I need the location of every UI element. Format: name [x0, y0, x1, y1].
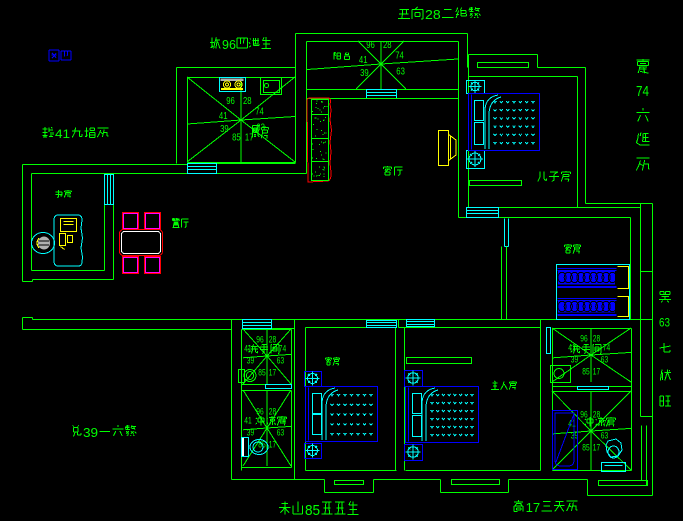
svg-text:17: 17 [269, 368, 276, 378]
svg-text:74: 74 [279, 344, 286, 354]
svg-text:41: 41 [55, 127, 70, 141]
svg-text:96: 96 [256, 407, 263, 417]
svg-text:96: 96 [366, 39, 375, 51]
svg-text:96: 96 [222, 37, 236, 52]
svg-text:39: 39 [220, 123, 229, 135]
svg-text:17: 17 [593, 443, 600, 453]
svg-text:39: 39 [571, 355, 578, 365]
svg-text:96: 96 [580, 334, 587, 344]
svg-text:85: 85 [232, 131, 241, 143]
svg-text:17: 17 [593, 367, 600, 377]
svg-text:28: 28 [269, 335, 276, 345]
svg-text:17: 17 [526, 500, 541, 515]
svg-text:28: 28 [383, 39, 392, 51]
svg-text:63: 63 [601, 355, 608, 365]
svg-text:28: 28 [243, 95, 252, 107]
svg-text:74: 74 [603, 343, 610, 353]
svg-text:74: 74 [395, 50, 404, 62]
svg-text:96: 96 [580, 410, 587, 420]
svg-text:96: 96 [256, 335, 263, 345]
svg-text:41: 41 [359, 54, 368, 66]
svg-text:85: 85 [305, 502, 320, 519]
svg-text:85: 85 [582, 367, 589, 377]
svg-text:28: 28 [593, 334, 600, 344]
svg-text:17: 17 [269, 440, 276, 450]
svg-text:28: 28 [425, 7, 441, 22]
svg-text:63: 63 [659, 316, 670, 330]
svg-text:41: 41 [244, 416, 251, 426]
svg-text:63: 63 [277, 356, 284, 366]
svg-text:74: 74 [255, 106, 264, 118]
svg-text:41: 41 [219, 110, 228, 122]
svg-text:63: 63 [601, 431, 608, 441]
svg-text:39: 39 [247, 428, 254, 438]
svg-text:28: 28 [269, 407, 276, 417]
svg-text:39: 39 [247, 356, 254, 366]
svg-text:39: 39 [360, 67, 369, 79]
svg-text:74: 74 [636, 83, 649, 100]
svg-text:96: 96 [226, 95, 235, 107]
svg-text:41: 41 [244, 344, 251, 354]
svg-text:39: 39 [83, 425, 98, 440]
svg-text:85: 85 [582, 443, 589, 453]
svg-text:63: 63 [277, 428, 284, 438]
svg-text:85: 85 [258, 368, 265, 378]
svg-text:63: 63 [396, 66, 405, 78]
